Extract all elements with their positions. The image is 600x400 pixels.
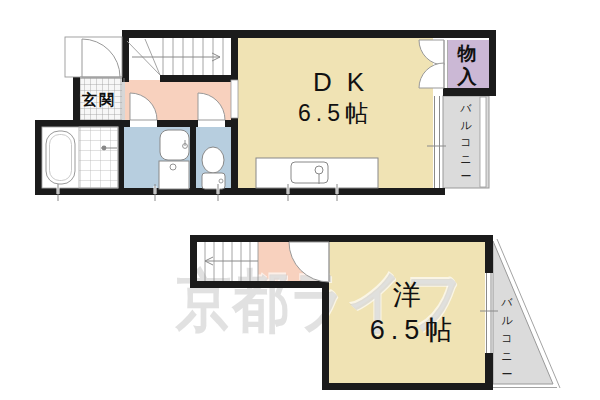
closet-door-upper-swing (419, 40, 444, 65)
balcony-upper-label: バルコニー (459, 100, 473, 185)
dk-room-label: DK (272, 66, 406, 98)
closet-label: 物入 (456, 42, 478, 88)
western-room-size: 6.5帖 (326, 313, 496, 347)
balcony-lower-label: バルコニー (500, 293, 514, 383)
dk-balcony-window (427, 96, 446, 188)
bathtub (46, 131, 75, 184)
shower-floor-grid (79, 127, 118, 188)
bath-faucet-icon (102, 146, 107, 151)
western-room-label: 洋 (377, 279, 437, 311)
toilet-door-swing (198, 93, 225, 120)
washroom-door-swing (130, 93, 157, 120)
entrance-label: 玄関 (76, 90, 122, 110)
toilet-bowl (202, 147, 224, 173)
closet-door-lower-swing (419, 63, 444, 88)
dk-room-size: 6.5帖 (258, 98, 408, 128)
floorplan-canvas: 京都ライフ (0, 0, 600, 400)
room2-door-swing (289, 242, 329, 282)
washing-machine-space (159, 161, 189, 189)
toilet-tank (202, 173, 225, 189)
hall-dk-opening (231, 80, 238, 118)
